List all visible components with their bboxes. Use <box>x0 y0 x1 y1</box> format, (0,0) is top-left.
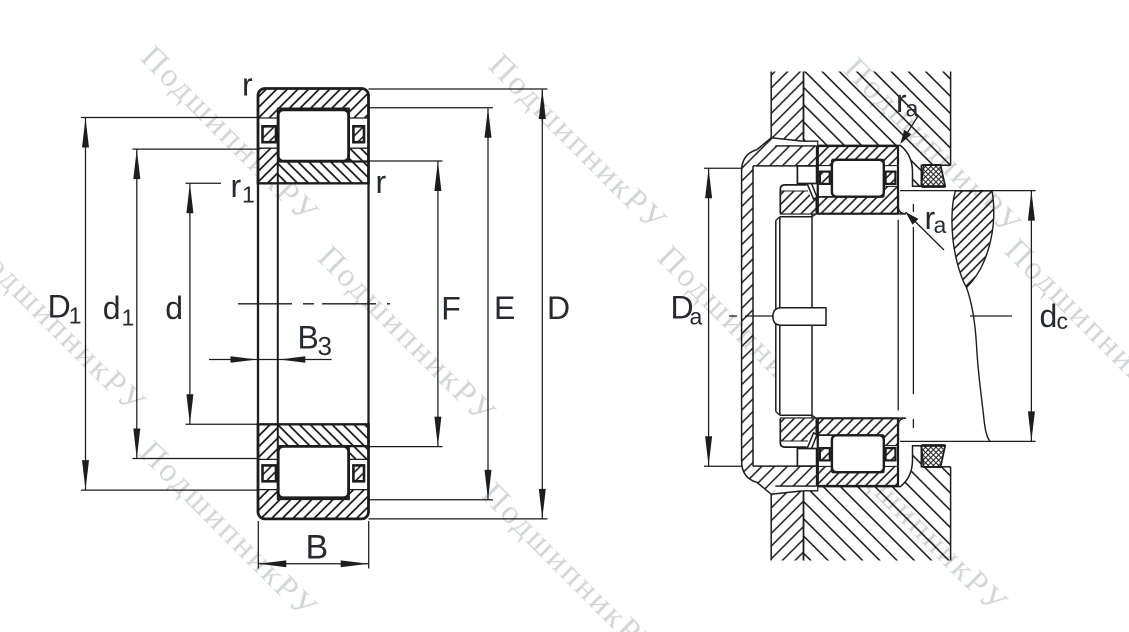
svg-text:F: F <box>441 291 461 327</box>
svg-text:1: 1 <box>122 305 135 331</box>
svg-text:d: d <box>165 290 183 326</box>
svg-text:c: c <box>1057 308 1069 334</box>
svg-text:B: B <box>306 529 329 567</box>
svg-text:r: r <box>242 67 253 103</box>
svg-text:r: r <box>231 168 242 204</box>
svg-text:1: 1 <box>69 303 82 329</box>
svg-text:3: 3 <box>318 331 332 361</box>
svg-text:a: a <box>934 212 947 238</box>
svg-text:a: a <box>690 304 703 330</box>
svg-text:E: E <box>494 290 515 326</box>
svg-text:B: B <box>298 320 319 356</box>
svg-text:D: D <box>547 290 570 326</box>
svg-text:a: a <box>906 96 919 122</box>
svg-text:d: d <box>103 290 121 326</box>
svg-text:1: 1 <box>242 182 255 208</box>
svg-text:r: r <box>376 164 387 200</box>
svg-text:d: d <box>1040 298 1058 334</box>
svg-text:D: D <box>48 289 71 325</box>
